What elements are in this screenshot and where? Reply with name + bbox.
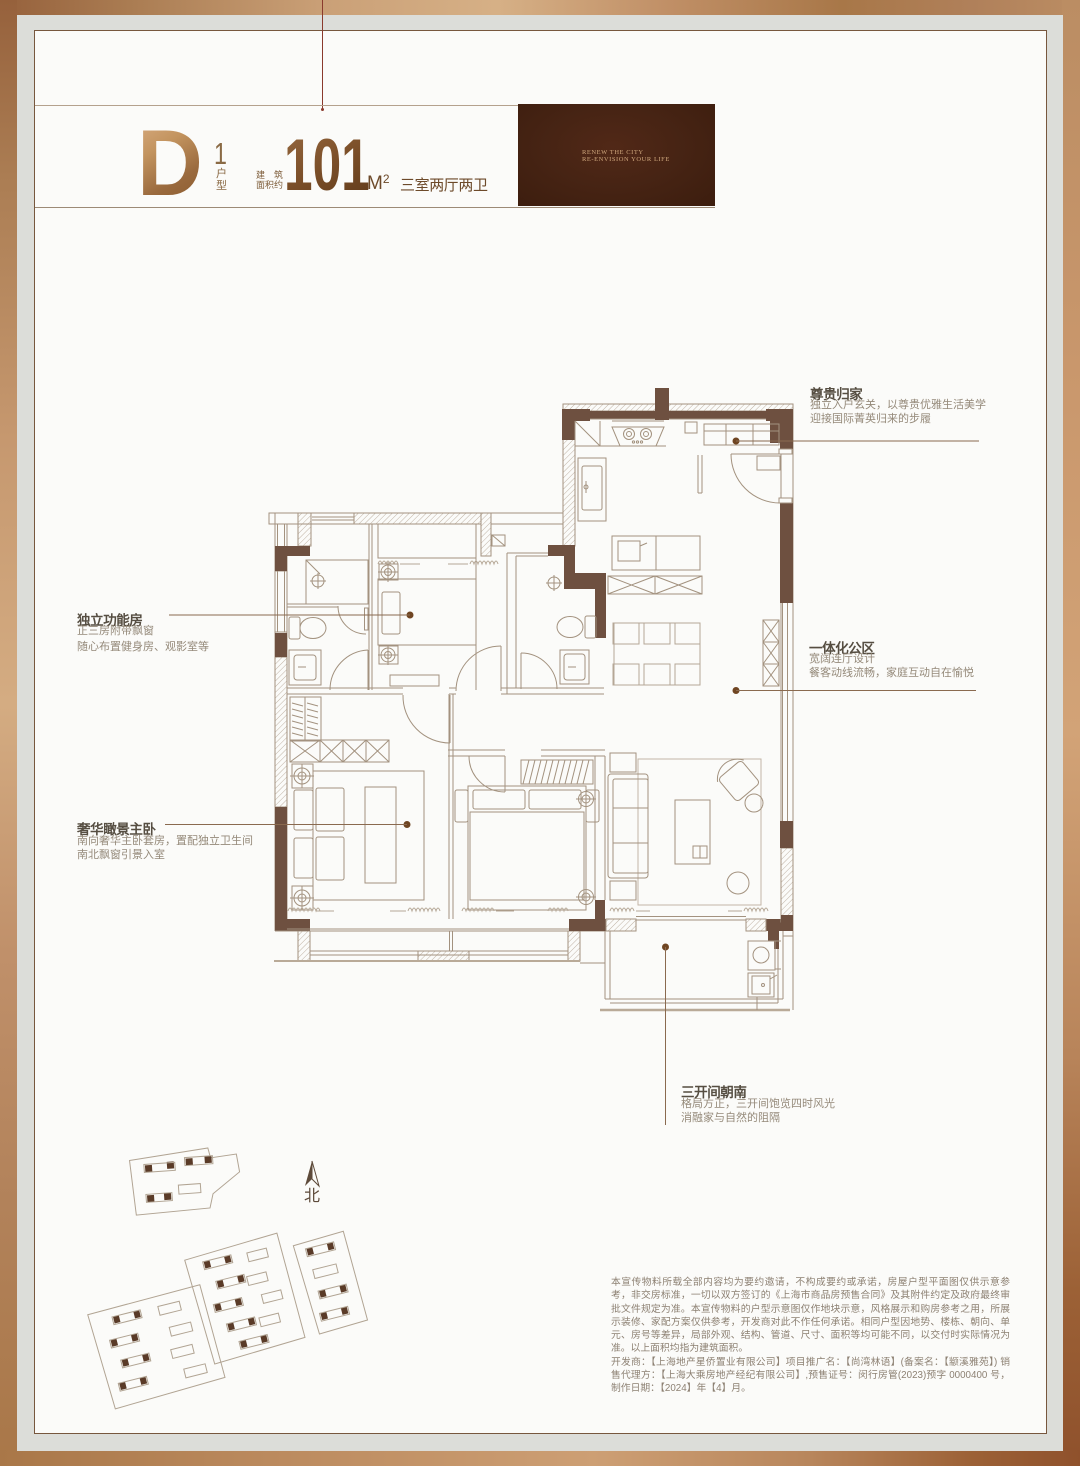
svg-text:北: 北 [304,1187,320,1205]
